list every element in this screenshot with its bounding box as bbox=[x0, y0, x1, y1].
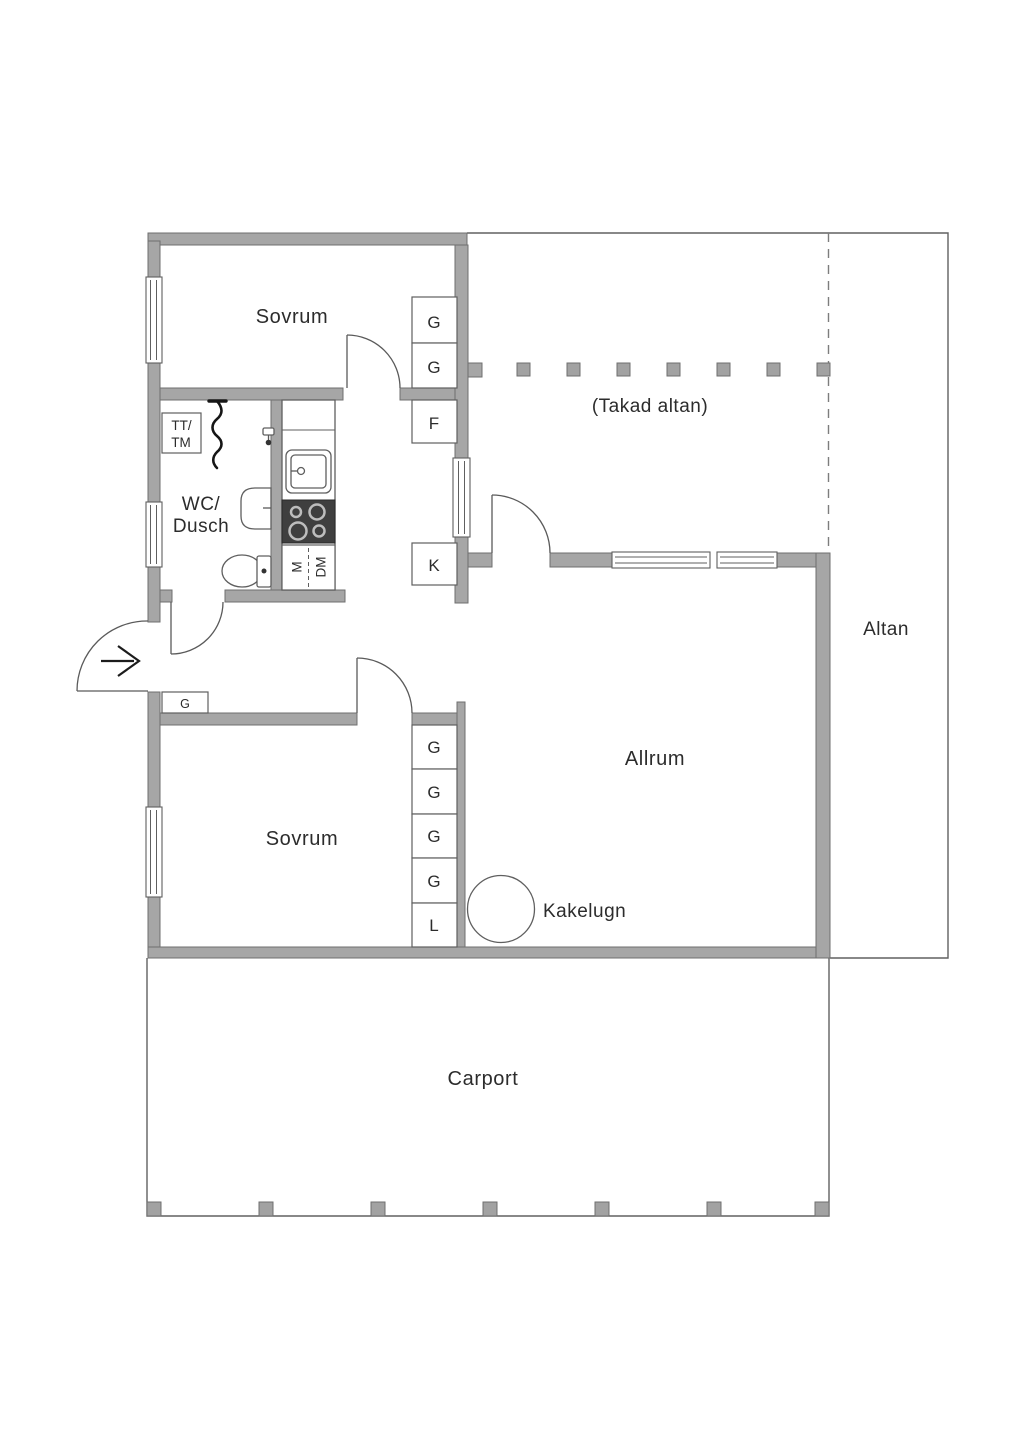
entry-arrow-icon bbox=[101, 646, 139, 676]
wall-left bbox=[148, 567, 160, 622]
room-label-livingroom: Allrum bbox=[625, 748, 685, 770]
wall-wc-south-stub bbox=[160, 590, 172, 602]
pillar bbox=[147, 1202, 161, 1216]
covered-terrace-pillars bbox=[517, 363, 830, 376]
wall-stub bbox=[468, 363, 482, 377]
microwave-label: M bbox=[290, 561, 305, 572]
window-kitchen bbox=[453, 458, 470, 537]
door-bedroom-top bbox=[347, 335, 400, 388]
pillar bbox=[483, 1202, 497, 1216]
shower-curtain-icon bbox=[209, 401, 226, 468]
door-wc bbox=[171, 602, 223, 654]
closet-label: G bbox=[427, 313, 440, 332]
door-bedroom-bottom bbox=[357, 658, 412, 713]
pillar bbox=[617, 363, 630, 376]
pillar bbox=[707, 1202, 721, 1216]
entry-door bbox=[77, 621, 148, 691]
dishwasher-label: DM bbox=[314, 557, 329, 578]
closet-label: G bbox=[427, 738, 440, 757]
wall-livingroom-north bbox=[777, 553, 816, 567]
fridge-label: K bbox=[428, 556, 440, 575]
wall-bedroom-top-south bbox=[160, 388, 343, 400]
pillar bbox=[595, 1202, 609, 1216]
pillar bbox=[567, 363, 580, 376]
sink-icon bbox=[286, 450, 331, 493]
wall-left bbox=[148, 363, 160, 502]
walls bbox=[148, 233, 830, 958]
room-label-wc-line1: WC/ bbox=[182, 494, 221, 515]
pillar bbox=[717, 363, 730, 376]
closet-label: G bbox=[427, 358, 440, 377]
carport-pillars bbox=[147, 1202, 829, 1216]
room-label-carport: Carport bbox=[448, 1068, 519, 1090]
wall-hall-south bbox=[160, 713, 357, 725]
terrace-outline bbox=[467, 233, 948, 958]
window-livingroom-2 bbox=[717, 552, 777, 568]
laundry-label-line2: TM bbox=[171, 435, 191, 450]
wall-left bbox=[148, 692, 160, 807]
laundry-label-line1: TT/ bbox=[171, 418, 191, 433]
pillar bbox=[517, 363, 530, 376]
closet-label: G bbox=[427, 872, 440, 891]
closet-label: G bbox=[427, 827, 440, 846]
room-label-bedroom-bottom: Sovrum bbox=[266, 828, 339, 850]
wall-closet-column bbox=[457, 702, 465, 947]
pillar bbox=[667, 363, 680, 376]
floor-plan: G G F K G G G G G L M DM bbox=[0, 0, 1024, 1448]
closet-label: G bbox=[427, 783, 440, 802]
wall-bedroom-top-south bbox=[400, 388, 457, 400]
room-label-covered-terrace: (Takad altan) bbox=[592, 396, 708, 417]
pillar bbox=[767, 363, 780, 376]
wall-livingroom-north bbox=[550, 553, 612, 567]
freezer-label: F bbox=[429, 414, 439, 433]
wall-livingroom-east bbox=[816, 553, 830, 958]
floor-plan-page: G G F K G G G G G L M DM bbox=[0, 0, 1024, 1448]
window-bedroom-top bbox=[146, 277, 162, 363]
wall-top bbox=[148, 233, 467, 245]
kitchen: M DM bbox=[282, 400, 335, 590]
closet-label: L bbox=[429, 916, 438, 935]
pillar bbox=[817, 363, 830, 376]
pillar bbox=[259, 1202, 273, 1216]
kakelugn-circle bbox=[468, 876, 535, 943]
wall-wc-south bbox=[225, 590, 345, 602]
window-wc bbox=[146, 502, 162, 567]
room-label-terrace: Altan bbox=[863, 619, 909, 640]
hall-closet-label: G bbox=[180, 697, 190, 711]
pillar bbox=[815, 1202, 829, 1216]
window-livingroom-1 bbox=[612, 552, 710, 568]
toilet-icon bbox=[222, 555, 271, 587]
washbasin-icon bbox=[241, 488, 271, 529]
microwave-dishwasher-unit: M DM bbox=[282, 545, 335, 590]
window-bedroom-bottom bbox=[146, 807, 162, 897]
room-label-bedroom-top: Sovrum bbox=[256, 306, 329, 328]
wall-livingroom-north bbox=[468, 553, 492, 567]
room-label-wc-line2: Dusch bbox=[173, 516, 229, 537]
wall-bottom bbox=[148, 947, 830, 958]
pillar bbox=[371, 1202, 385, 1216]
door-terrace bbox=[492, 495, 550, 553]
kakelugn-label: Kakelugn bbox=[543, 901, 626, 922]
stove-icon bbox=[282, 500, 335, 543]
wall-left bbox=[148, 241, 160, 277]
